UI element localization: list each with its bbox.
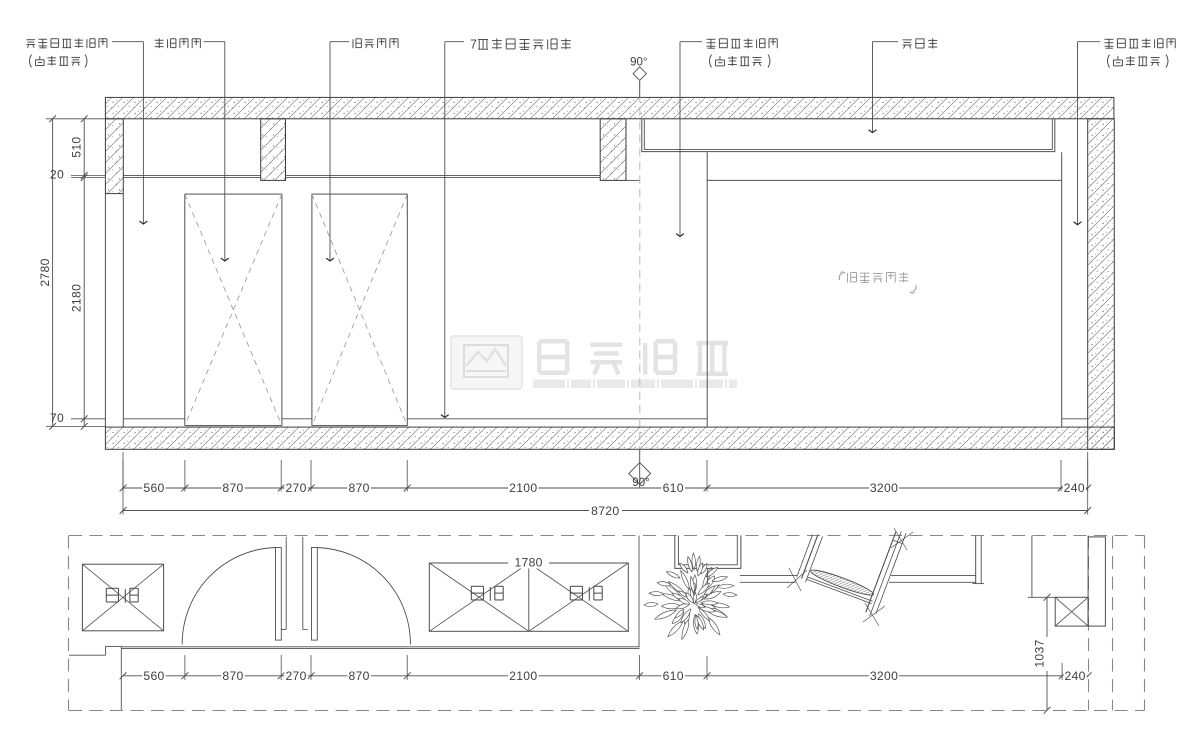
svg-text:560: 560: [143, 481, 164, 495]
svg-text:2180: 2180: [70, 284, 84, 312]
svg-text:2780: 2780: [38, 258, 52, 286]
svg-text:270: 270: [285, 481, 306, 495]
svg-text:1780: 1780: [514, 556, 542, 570]
svg-text:2100: 2100: [509, 481, 537, 495]
svg-text:240: 240: [1064, 481, 1085, 495]
svg-text:8720: 8720: [591, 504, 619, 518]
svg-text:870: 870: [222, 481, 243, 495]
svg-text:1037: 1037: [1033, 639, 1047, 667]
svg-text:2100: 2100: [509, 669, 537, 683]
svg-text:610: 610: [663, 481, 684, 495]
svg-text:90°: 90°: [630, 57, 647, 69]
svg-text:610: 610: [663, 669, 684, 683]
svg-text:20: 20: [50, 167, 64, 181]
svg-text:510: 510: [70, 136, 84, 157]
svg-text:870: 870: [348, 669, 369, 683]
svg-text:7: 7: [470, 38, 477, 52]
svg-text:90°: 90°: [632, 477, 649, 489]
svg-text:240: 240: [1064, 669, 1085, 683]
svg-text:870: 870: [348, 481, 369, 495]
svg-text:3200: 3200: [870, 669, 898, 683]
svg-text:560: 560: [143, 669, 164, 683]
svg-text:3200: 3200: [870, 481, 898, 495]
svg-text:70: 70: [50, 411, 64, 425]
svg-text:270: 270: [285, 669, 306, 683]
svg-text:870: 870: [222, 669, 243, 683]
